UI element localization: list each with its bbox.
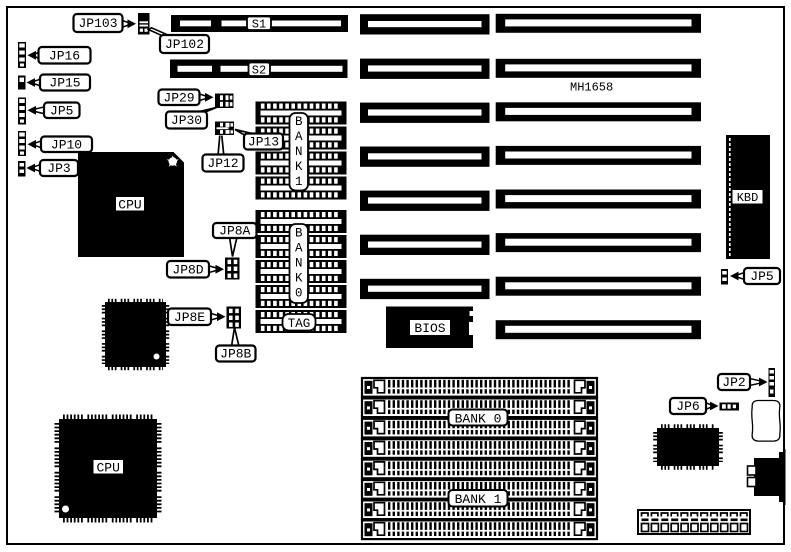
svg-text:JP102: JP102 (165, 37, 204, 52)
svg-text:CPU: CPU (96, 460, 119, 475)
svg-text:B: B (295, 115, 303, 129)
svg-text:S2: S2 (252, 64, 266, 78)
svg-text:B: B (295, 227, 303, 241)
svg-text:K: K (295, 272, 303, 286)
svg-text:JP8D: JP8D (172, 262, 203, 277)
svg-text:A: A (295, 242, 303, 256)
svg-text:BANK 1: BANK 1 (455, 492, 502, 507)
svg-text:KBD: KBD (737, 191, 759, 205)
svg-text:JP29: JP29 (163, 90, 194, 105)
svg-text:JP8B: JP8B (220, 347, 251, 362)
svg-text:S1: S1 (252, 18, 266, 32)
svg-text:TAG: TAG (288, 317, 311, 331)
svg-text:JP13: JP13 (248, 135, 279, 150)
svg-text:JP2: JP2 (722, 375, 745, 390)
svg-text:JP8A: JP8A (219, 224, 250, 239)
svg-text:JP16: JP16 (49, 48, 80, 63)
svg-text:1: 1 (295, 175, 303, 189)
svg-text:JP3: JP3 (47, 161, 70, 176)
svg-text:JP10: JP10 (51, 137, 82, 152)
svg-text:K: K (295, 160, 303, 174)
svg-text:CPU: CPU (118, 197, 141, 212)
svg-text:JP6: JP6 (676, 399, 699, 414)
svg-text:N: N (295, 257, 303, 271)
svg-text:MH1658: MH1658 (570, 81, 613, 95)
svg-text:0: 0 (295, 287, 303, 301)
svg-text:N: N (295, 145, 303, 159)
svg-text:JP12: JP12 (207, 156, 238, 171)
svg-text:JP30: JP30 (171, 113, 202, 128)
svg-text:JP103: JP103 (78, 16, 117, 31)
svg-text:JP8E: JP8E (174, 310, 205, 325)
svg-text:BANK 0: BANK 0 (455, 411, 502, 426)
svg-text:BIOS: BIOS (414, 321, 445, 336)
svg-text:JP5: JP5 (50, 103, 73, 118)
svg-text:JP15: JP15 (49, 76, 80, 91)
svg-text:A: A (295, 130, 303, 144)
svg-text:JP5: JP5 (750, 269, 773, 284)
